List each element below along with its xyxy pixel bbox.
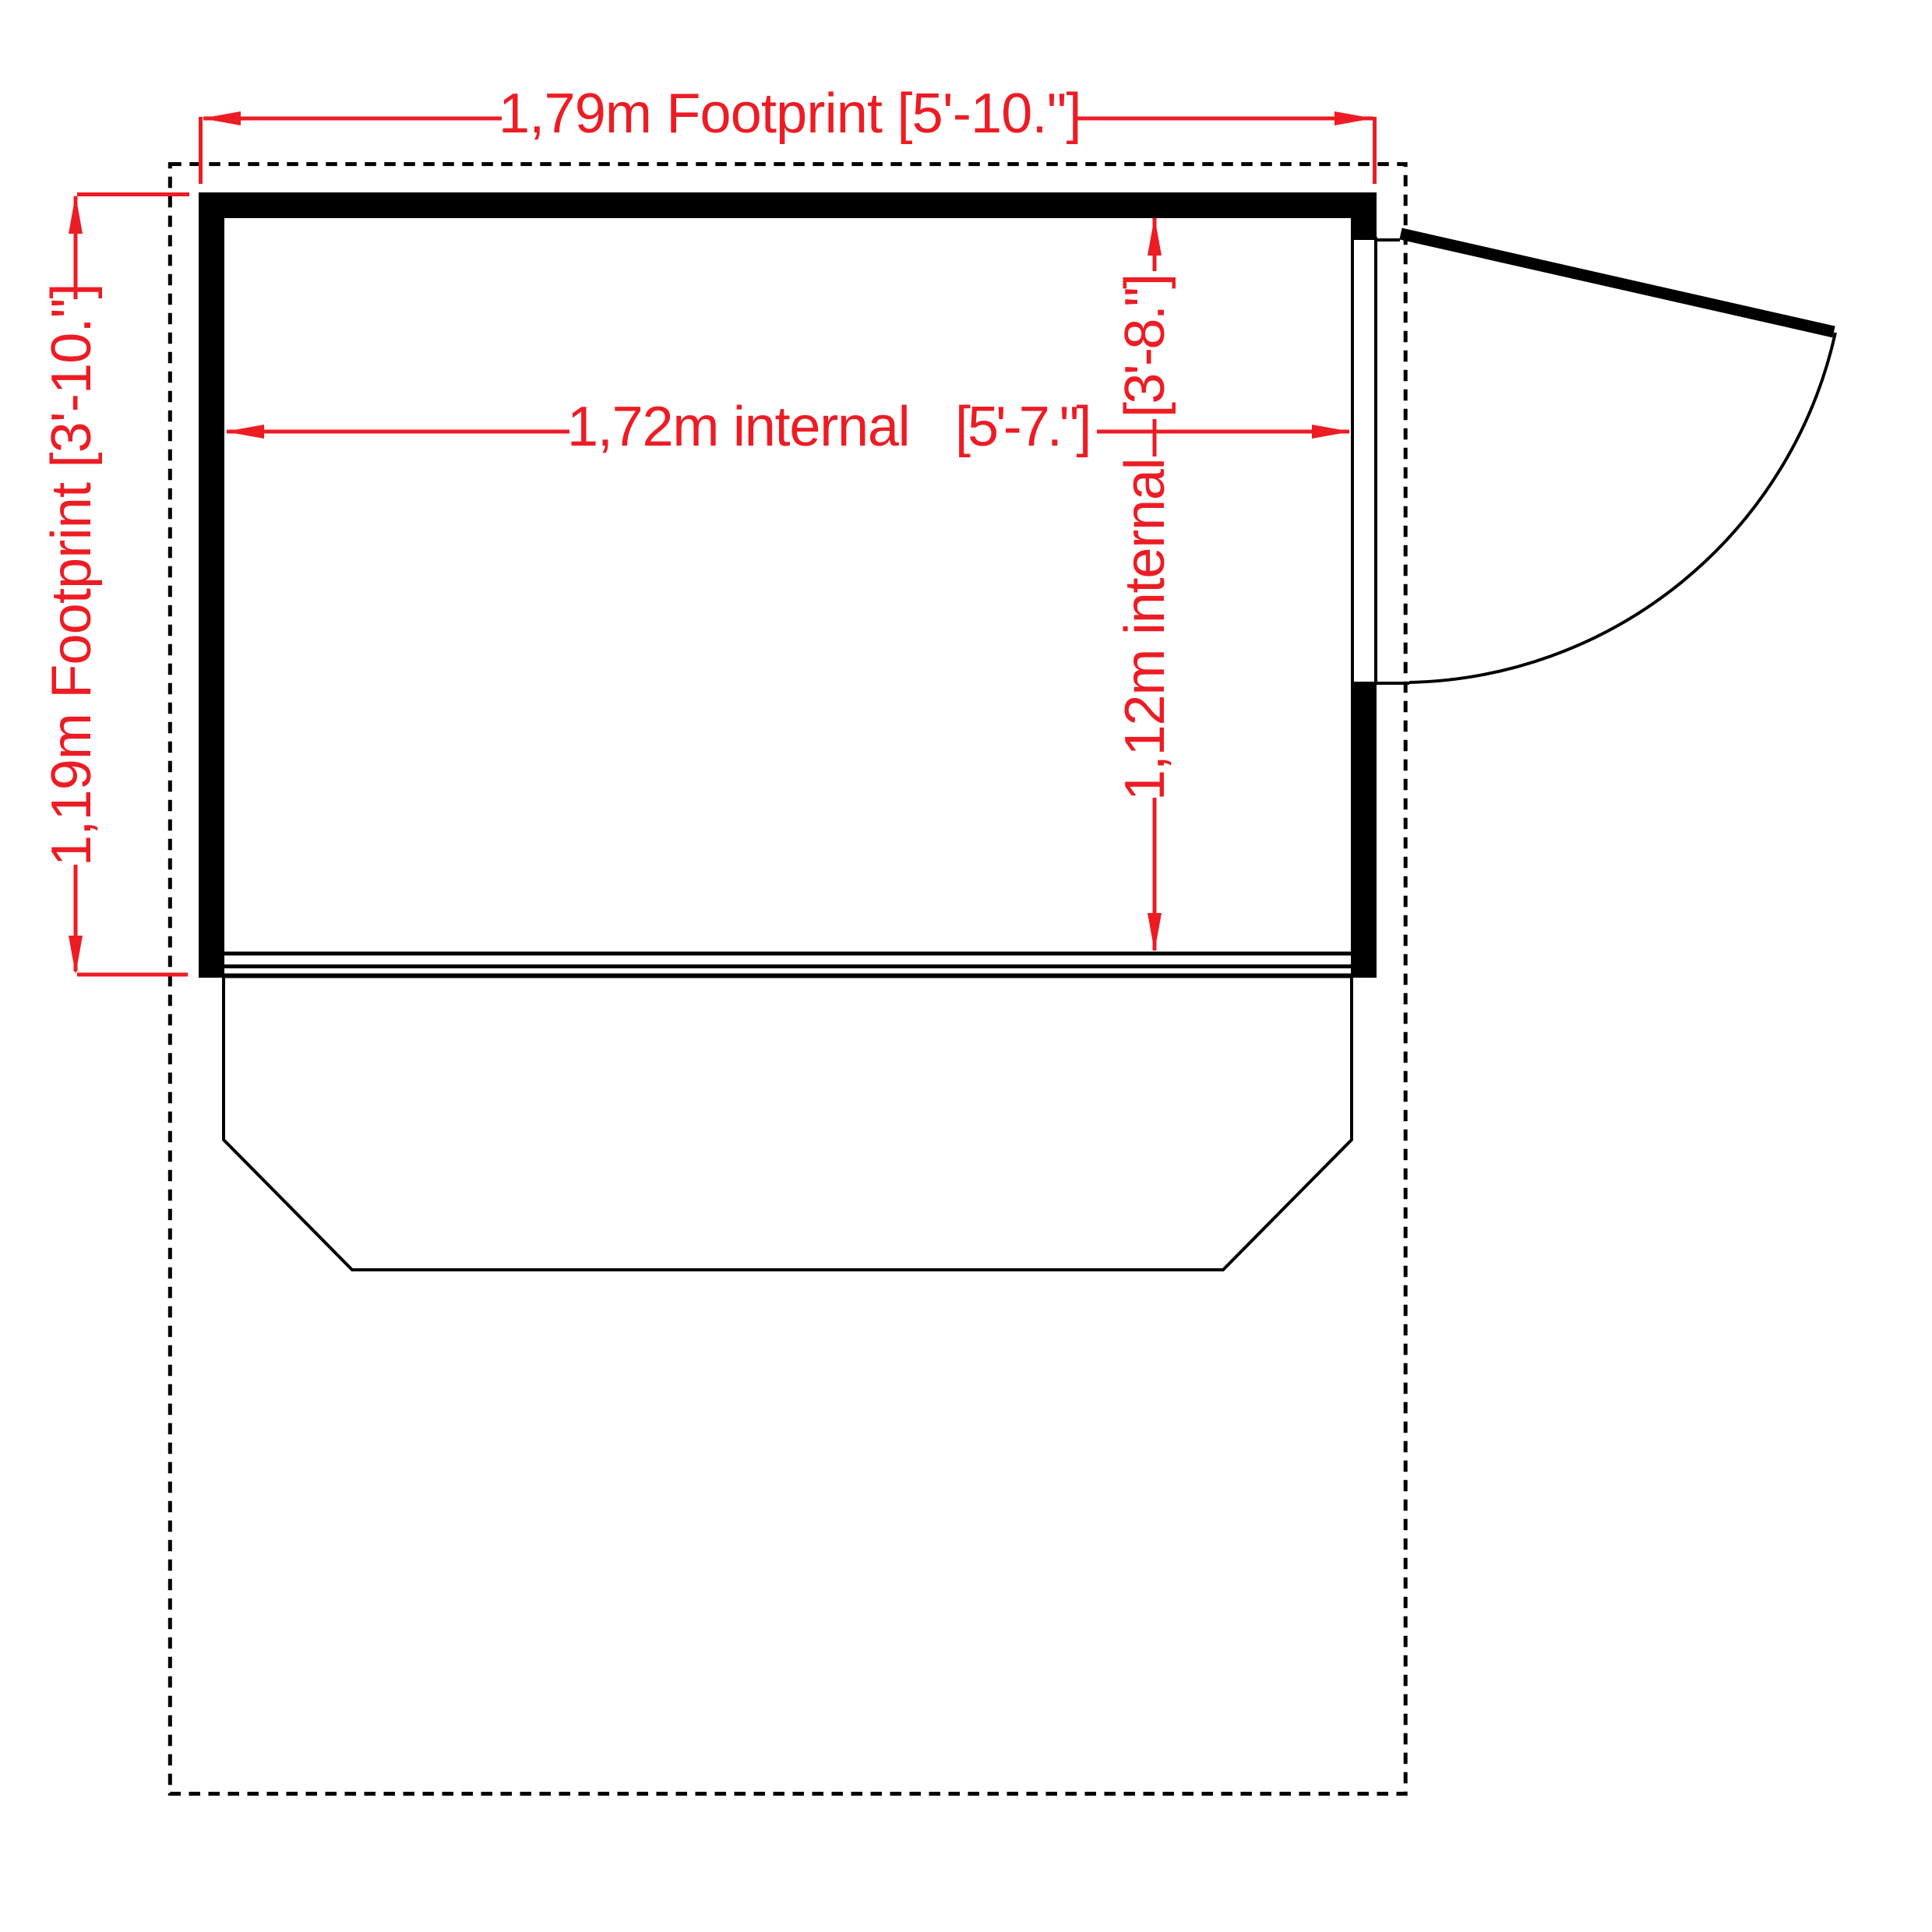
svg-text:1,19m Footprint [3'-10."]: 1,19m Footprint [3'-10."]	[41, 284, 103, 866]
svg-text:[5'-7."]: [5'-7."]	[955, 396, 1088, 458]
svg-text:1,79m Footprint [5'-10."]: 1,79m Footprint [5'-10."]	[499, 83, 1081, 145]
svg-text:[3'-8."]: [3'-8."]	[1114, 275, 1176, 418]
svg-text:1,12m internal: 1,12m internal	[1114, 459, 1176, 801]
svg-text:1,72m internal: 1,72m internal	[567, 396, 909, 458]
